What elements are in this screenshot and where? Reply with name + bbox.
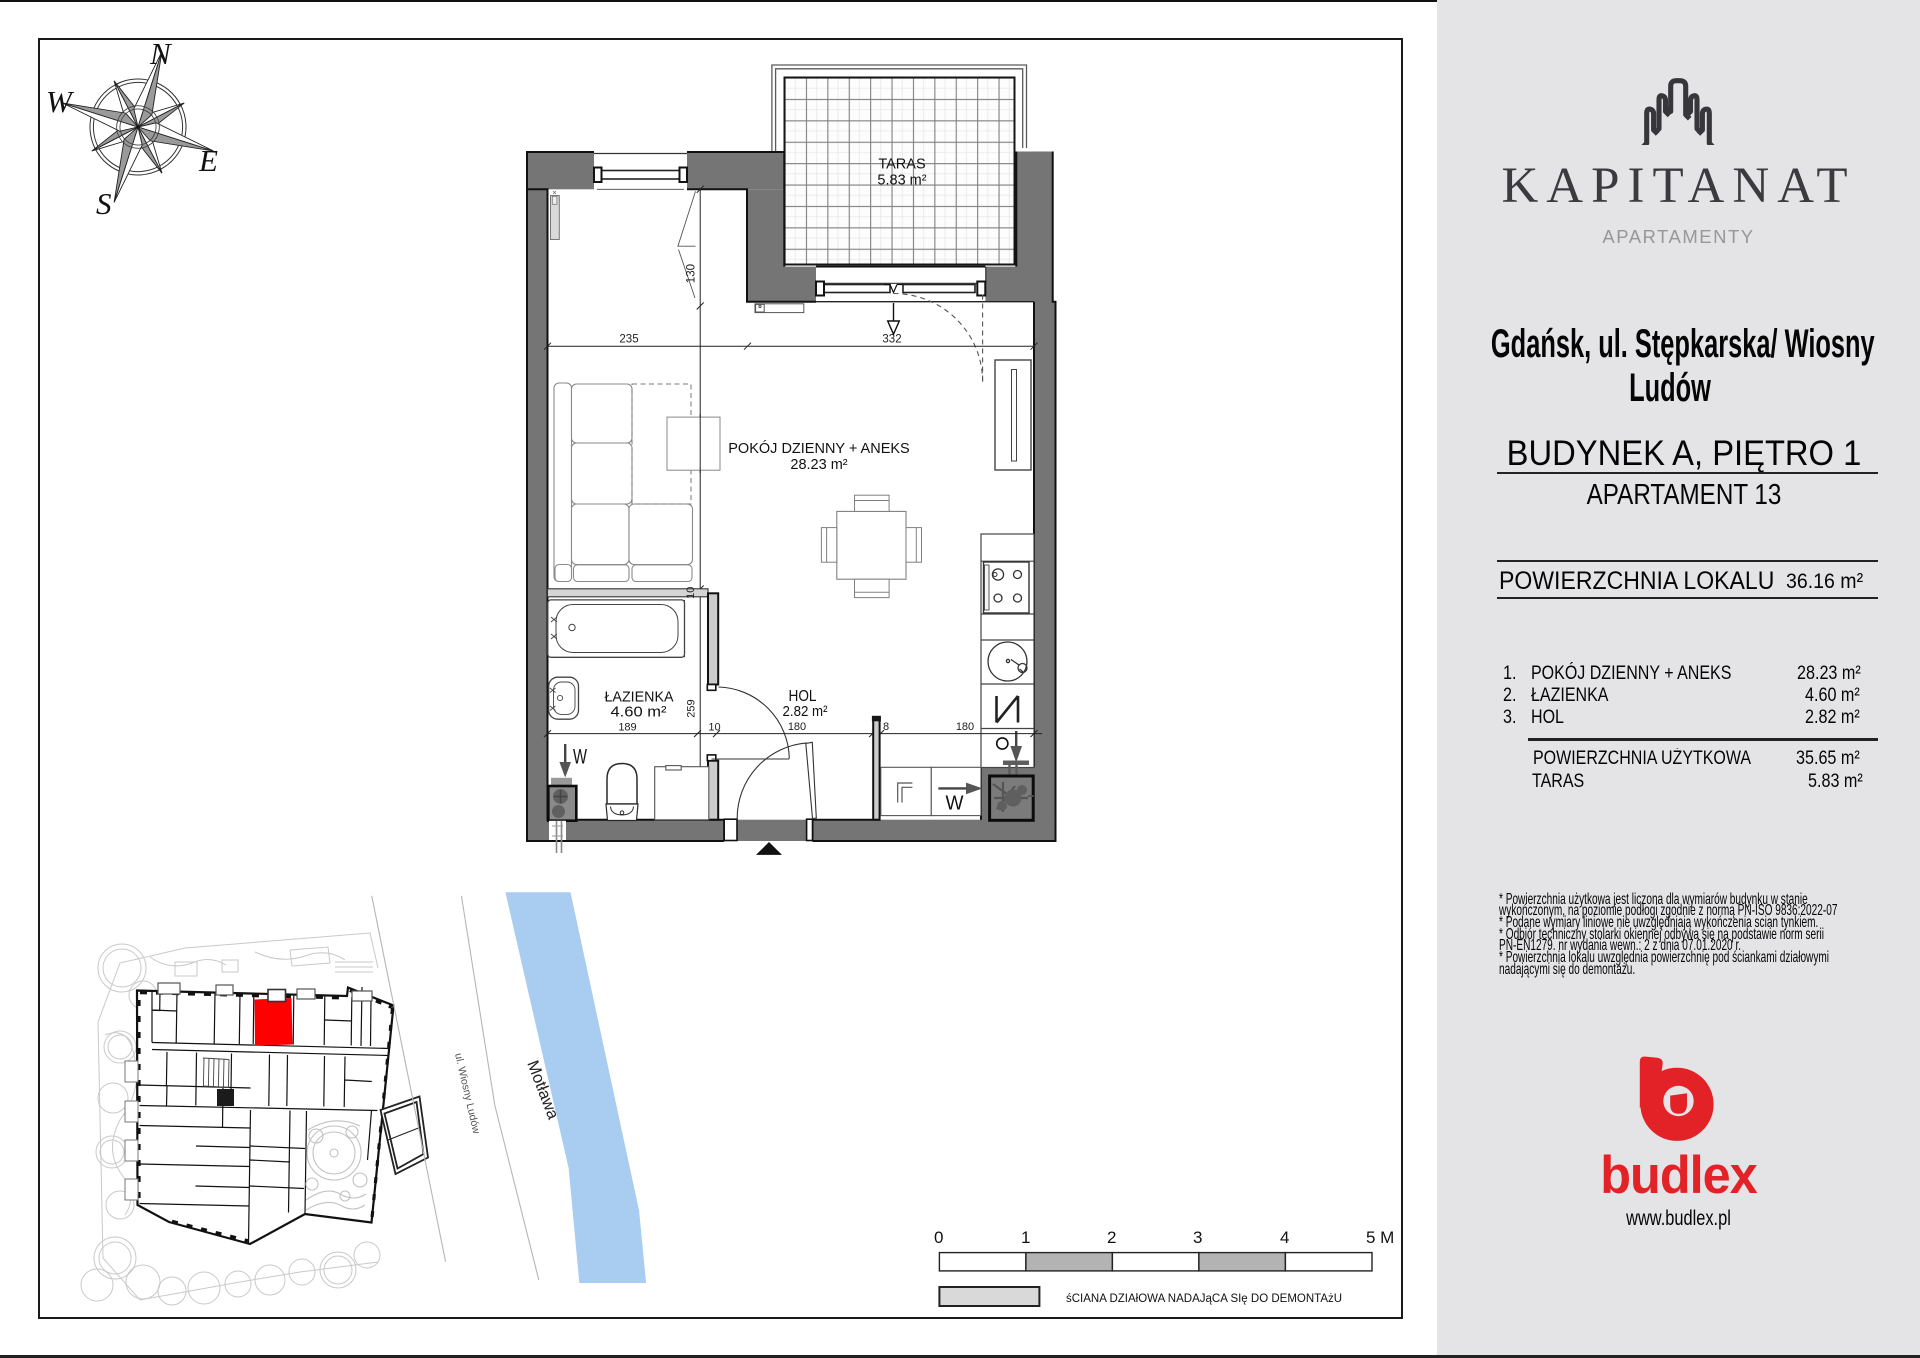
svg-text:180: 180 [956, 721, 974, 733]
svg-text:W: W [573, 746, 587, 769]
svg-text:1: 1 [1021, 1228, 1030, 1247]
svg-text:10: 10 [708, 722, 720, 734]
svg-text:S: S [96, 186, 112, 221]
svg-text:2: 2 [1107, 1228, 1116, 1247]
svg-text:5 M: 5 M [1366, 1228, 1394, 1247]
svg-text:W: W [946, 793, 964, 815]
svg-text:4: 4 [1280, 1228, 1289, 1247]
svg-text:28.23 m²: 28.23 m² [790, 457, 847, 473]
svg-text:W: W [46, 84, 75, 119]
svg-text:4.60 m²: 4.60 m² [611, 704, 667, 721]
svg-text:0: 0 [934, 1228, 943, 1247]
svg-text:130: 130 [686, 264, 698, 283]
svg-text:259: 259 [686, 699, 698, 717]
svg-text:235: 235 [619, 334, 638, 346]
svg-text:180: 180 [788, 721, 806, 733]
svg-text:189: 189 [618, 722, 636, 734]
svg-text:TARAS: TARAS [878, 157, 925, 173]
svg-text:332: 332 [882, 334, 901, 346]
svg-text:5.83 m²: 5.83 m² [877, 173, 926, 189]
svg-text:3: 3 [1193, 1228, 1202, 1247]
svg-text:ul. Wiosny Ludów: ul. Wiosny Ludów [452, 1052, 482, 1135]
svg-text:śCIANA DZIAłOWA NADAJąCA SIę D: śCIANA DZIAłOWA NADAJąCA SIę DO DEMONTAż… [1066, 1293, 1342, 1305]
svg-text:POKÓJ DZIENNY + ANEKS: POKÓJ DZIENNY + ANEKS [728, 440, 909, 457]
svg-text:E: E [198, 143, 218, 178]
svg-text:8: 8 [883, 721, 889, 733]
svg-text:N: N [149, 36, 173, 71]
svg-text:2.82 m²: 2.82 m² [783, 703, 828, 720]
svg-text:10: 10 [685, 587, 697, 599]
